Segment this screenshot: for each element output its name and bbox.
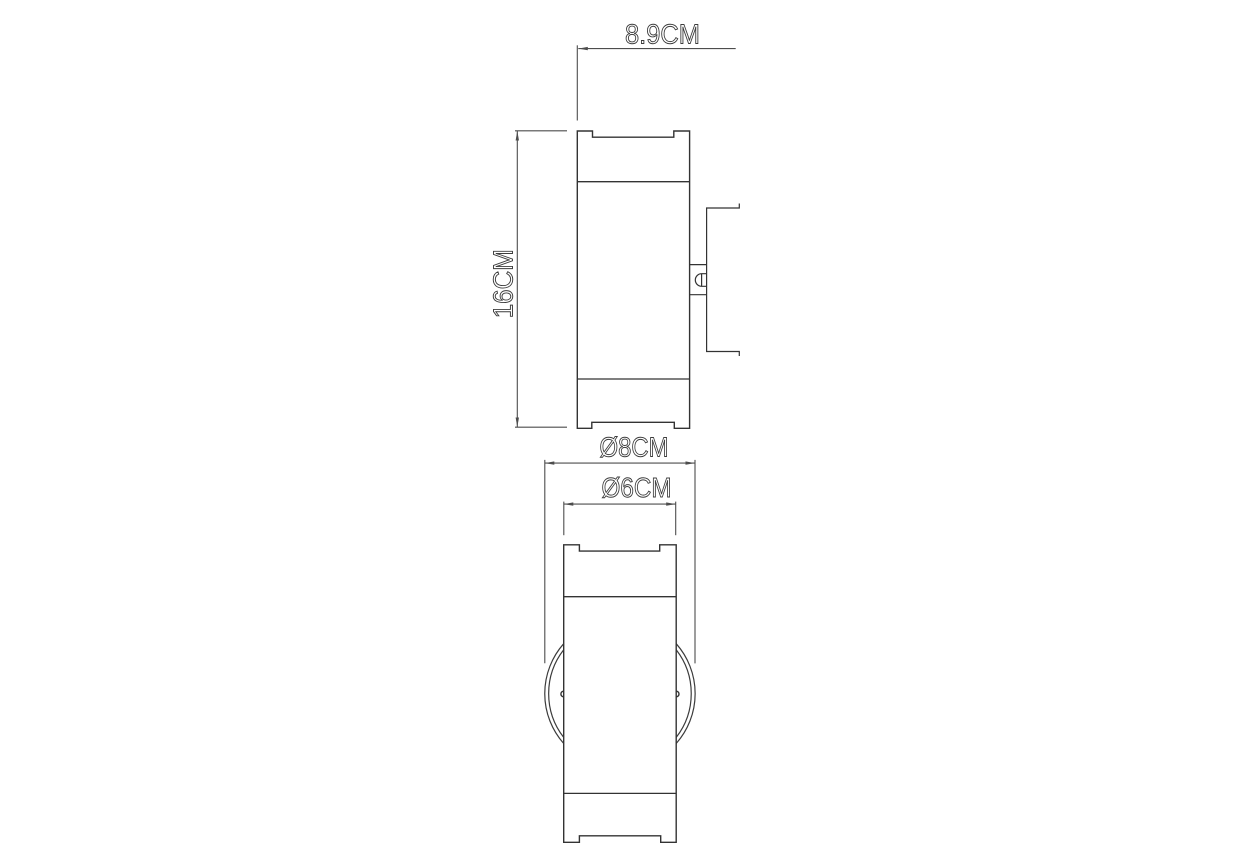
svg-text:8.9CM: 8.9CM [625, 19, 700, 50]
svg-text:Ø6CM: Ø6CM [602, 472, 672, 503]
svg-text:16CM: 16CM [488, 249, 519, 318]
svg-text:Ø8CM: Ø8CM [600, 432, 669, 463]
